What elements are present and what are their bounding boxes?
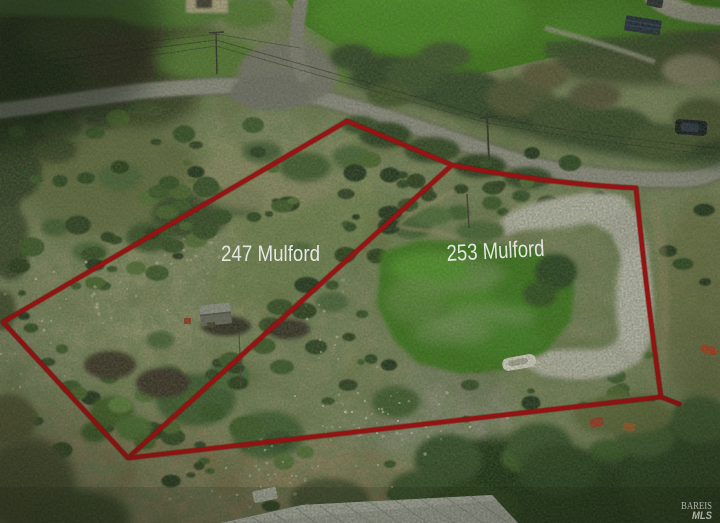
svg-text:MLS: MLS bbox=[692, 510, 713, 522]
